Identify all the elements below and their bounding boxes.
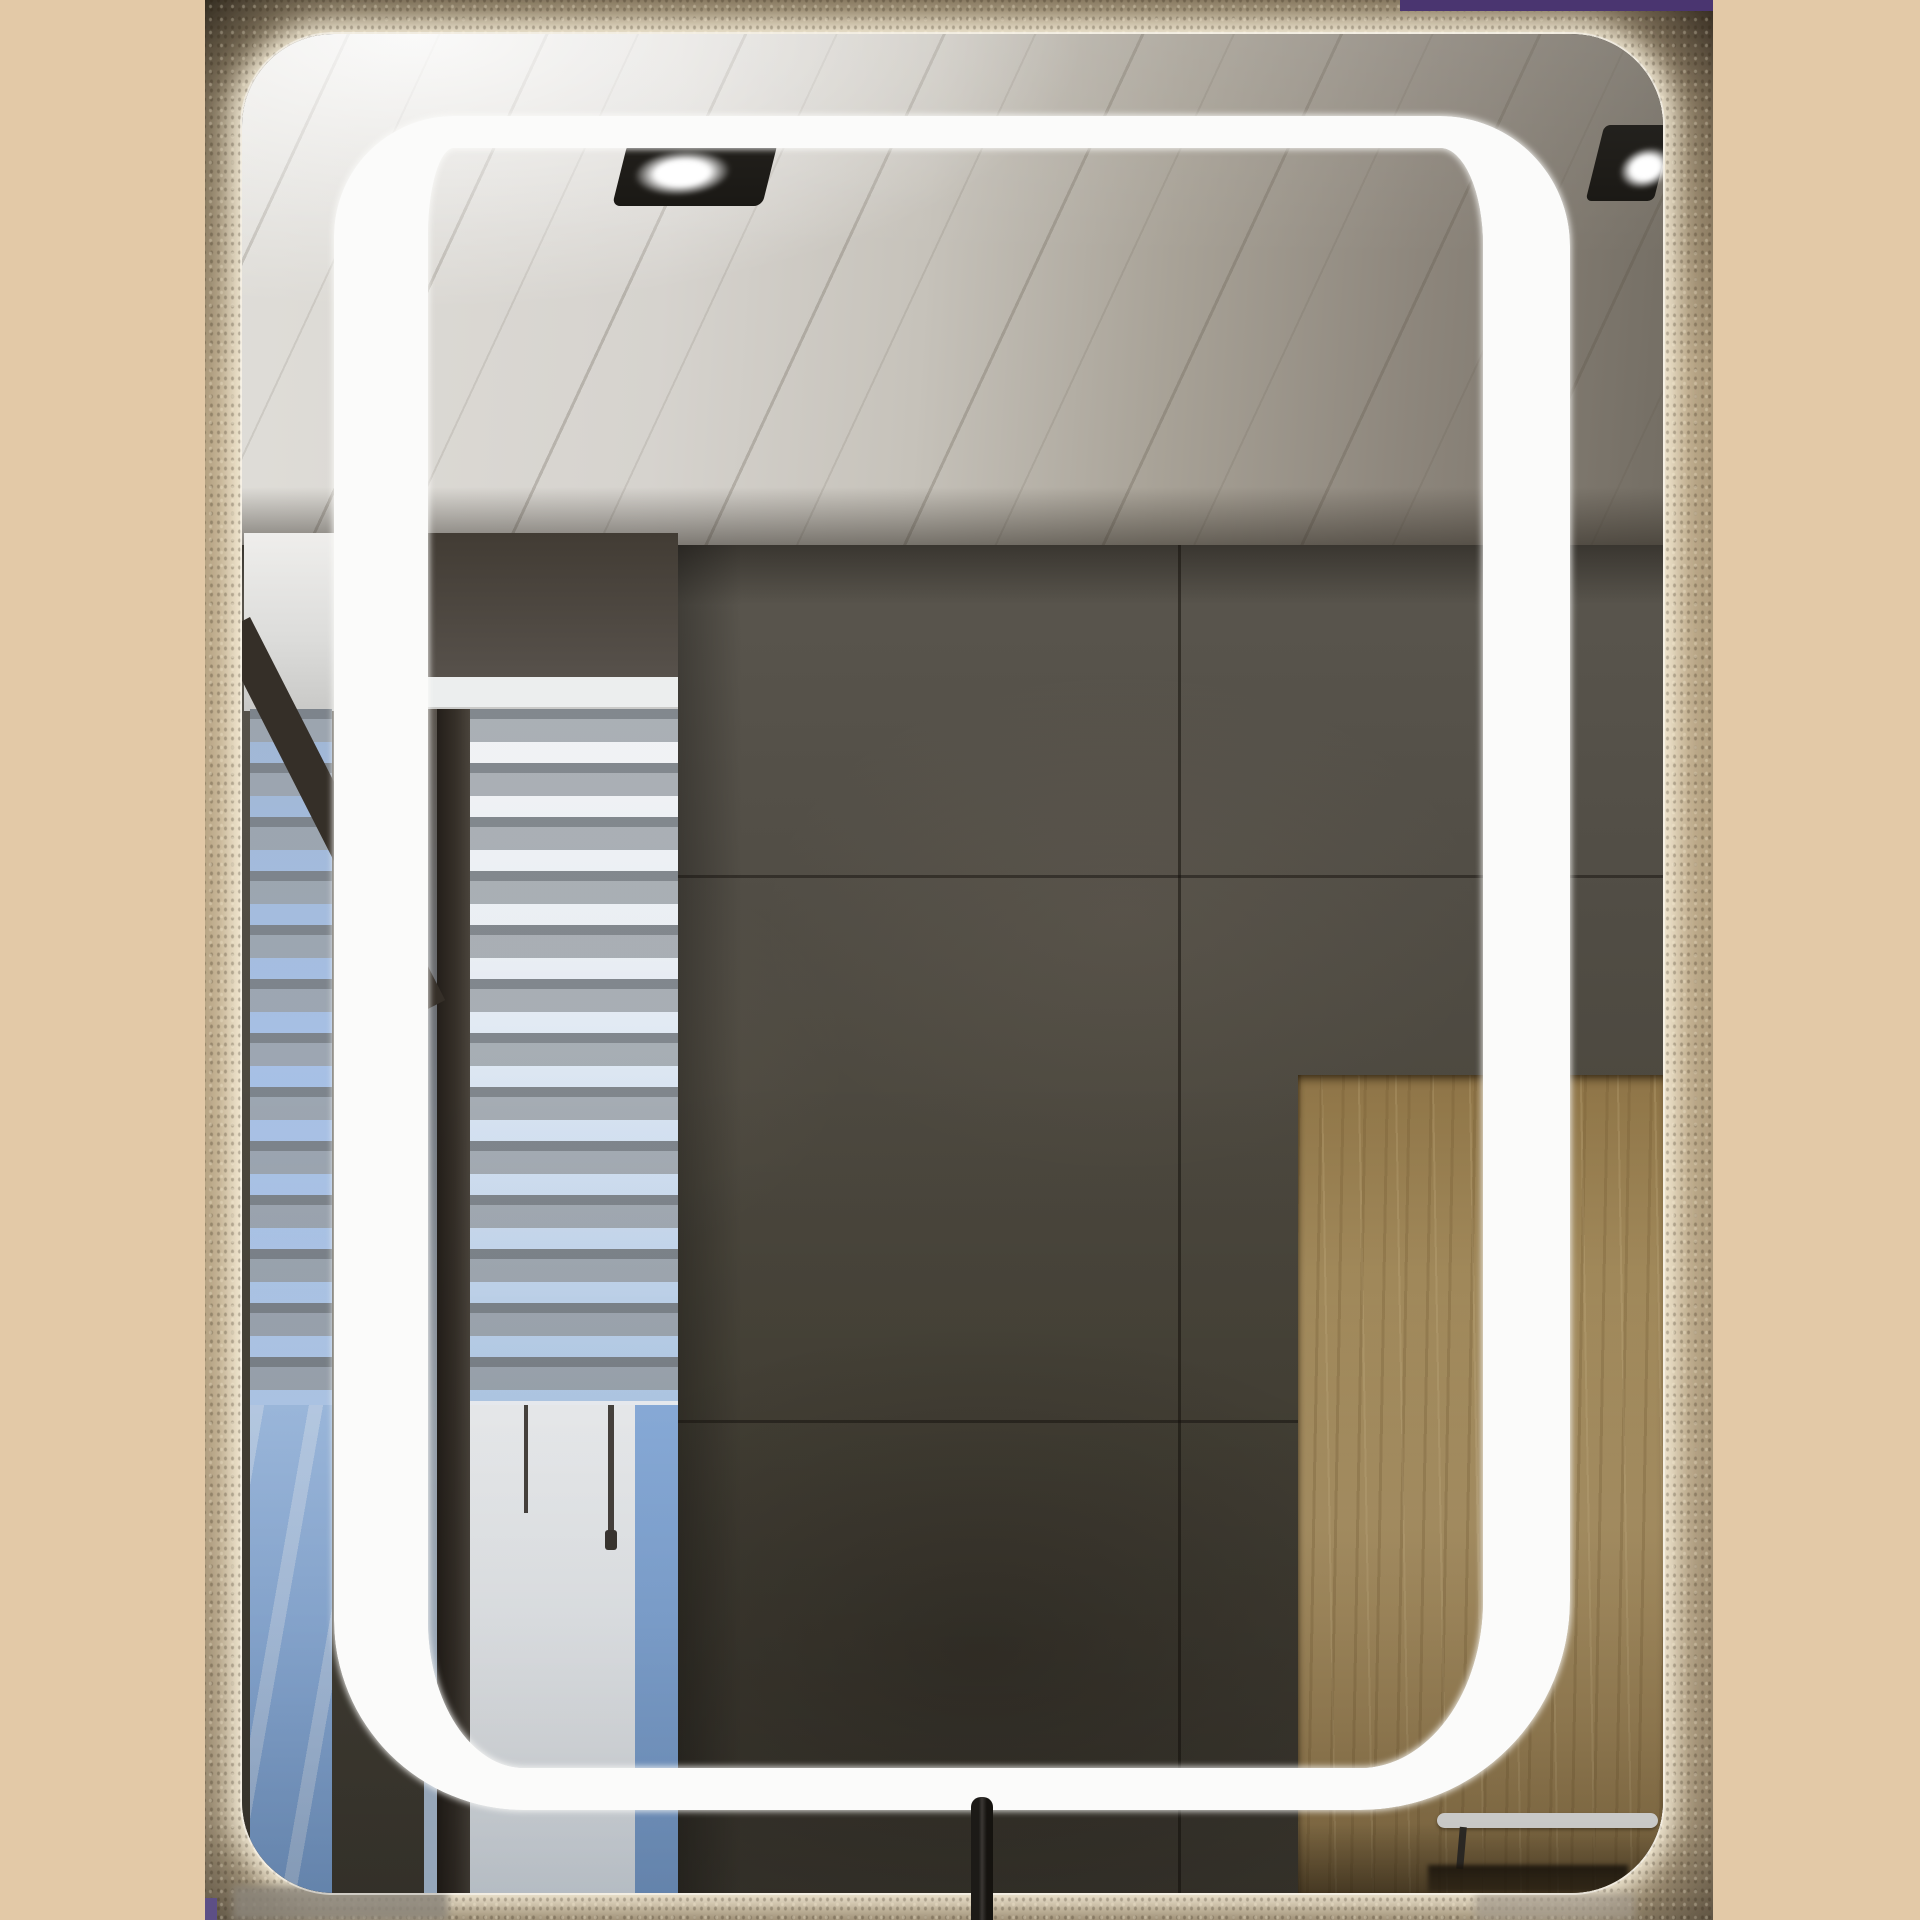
led-strip-frame <box>334 116 1570 1810</box>
faucet <box>971 1797 993 1920</box>
purple-strip-bottom <box>205 1898 217 1920</box>
wall-shadow-patch-right <box>1475 1893 1635 1920</box>
purple-strip-top <box>1400 0 1713 11</box>
led-mirror <box>242 34 1663 1893</box>
photo-frame <box>205 0 1713 1920</box>
